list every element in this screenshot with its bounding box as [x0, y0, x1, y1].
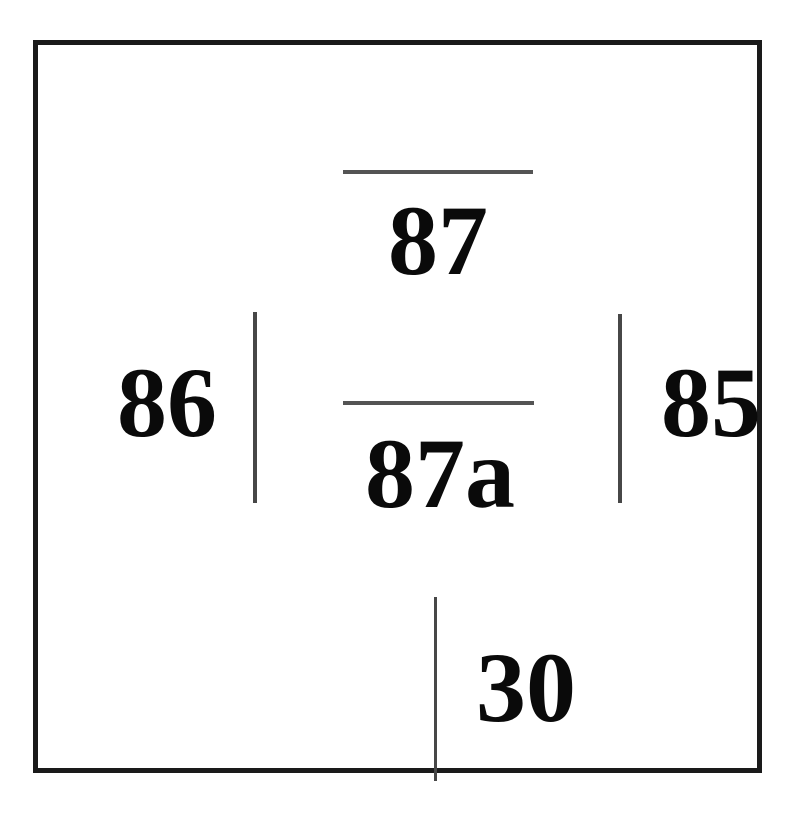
relay-pin-diagram: 87 86 87a 85 30: [0, 0, 800, 818]
pin-86-label: 86: [92, 353, 242, 453]
pin-87-terminal-line: [343, 170, 533, 174]
relay-outline-box: 87 86 87a 85 30: [33, 40, 762, 773]
pin-30-label: 30: [461, 638, 591, 738]
pin-85-label: 85: [646, 353, 776, 453]
pin-87a-terminal-line: [343, 401, 534, 405]
pin-86-terminal-line: [253, 312, 257, 503]
pin-85-terminal-line: [618, 314, 622, 503]
pin-87a-label: 87a: [330, 424, 550, 524]
pin-87-label: 87: [339, 191, 537, 291]
pin-30-terminal-line: [434, 597, 437, 781]
